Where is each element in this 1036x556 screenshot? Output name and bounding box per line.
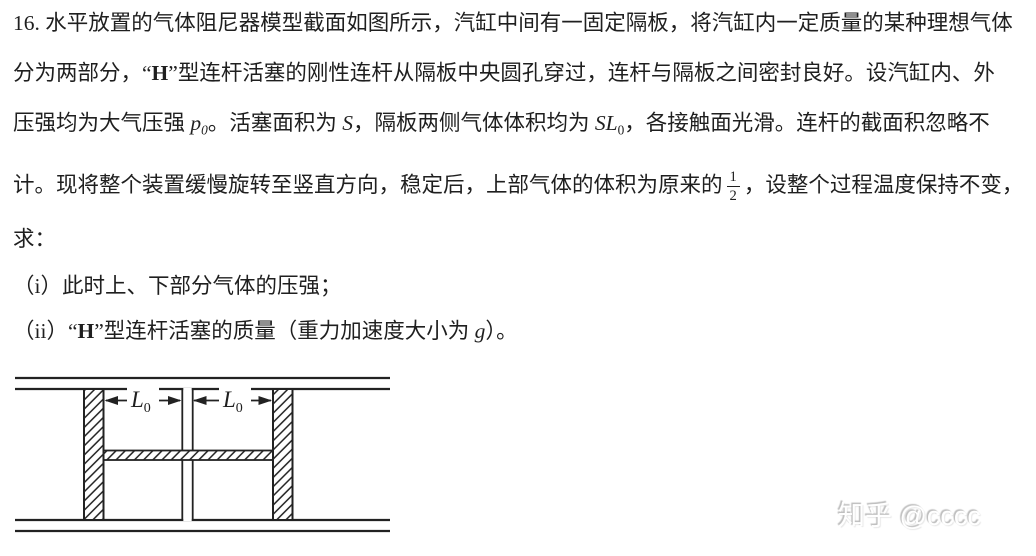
arrowhead-right-icon [259,396,273,405]
problem-line-1: 16. 水平放置的气体阻尼器模型截面如图所示，汽缸中间有一固定隔板，将汽缸内一定… [13,8,1013,38]
dimension-arrow-left: L0 [105,386,182,416]
arrowhead-right-icon [168,396,182,405]
right-piston [273,389,293,520]
dimension-arrow-right: L0 [193,386,272,416]
problem-line-7: （ii）“H”型连杆活塞的质量（重力加速度大小为 g）。 [13,316,518,346]
watermark: 知乎 @cccc [838,494,981,533]
left-piston [84,389,104,520]
arrowhead-left-icon [193,396,207,405]
problem-line-4: 计。现将整个装置缓慢旋转至竖直方向，稳定后，上部气体的体积为原来的12，设整个过… [13,169,1023,205]
physics-diagram: L0 L0 [0,360,420,556]
problem-line-5: 求： [13,224,56,254]
cylinder-bottom-wall [15,520,390,531]
problem-line-3: 压强均为大气压强 p0。活塞面积为 S，隔板两侧气体体积均为 SL0，各接触面光… [13,108,990,145]
page: 16. 水平放置的气体阻尼器模型截面如图所示，汽缸中间有一固定隔板，将汽缸内一定… [0,0,1036,556]
cylinder-top-wall [15,378,390,389]
connecting-rod [103,451,274,461]
problem-line-2: 分为两部分，“H”型连杆活塞的刚性连杆从隔板中央圆孔穿过，连杆与隔板之间密封良好… [13,58,995,88]
arrowhead-left-icon [105,396,119,405]
problem-line-6: （i）此时上、下部分气体的压强； [13,271,341,301]
